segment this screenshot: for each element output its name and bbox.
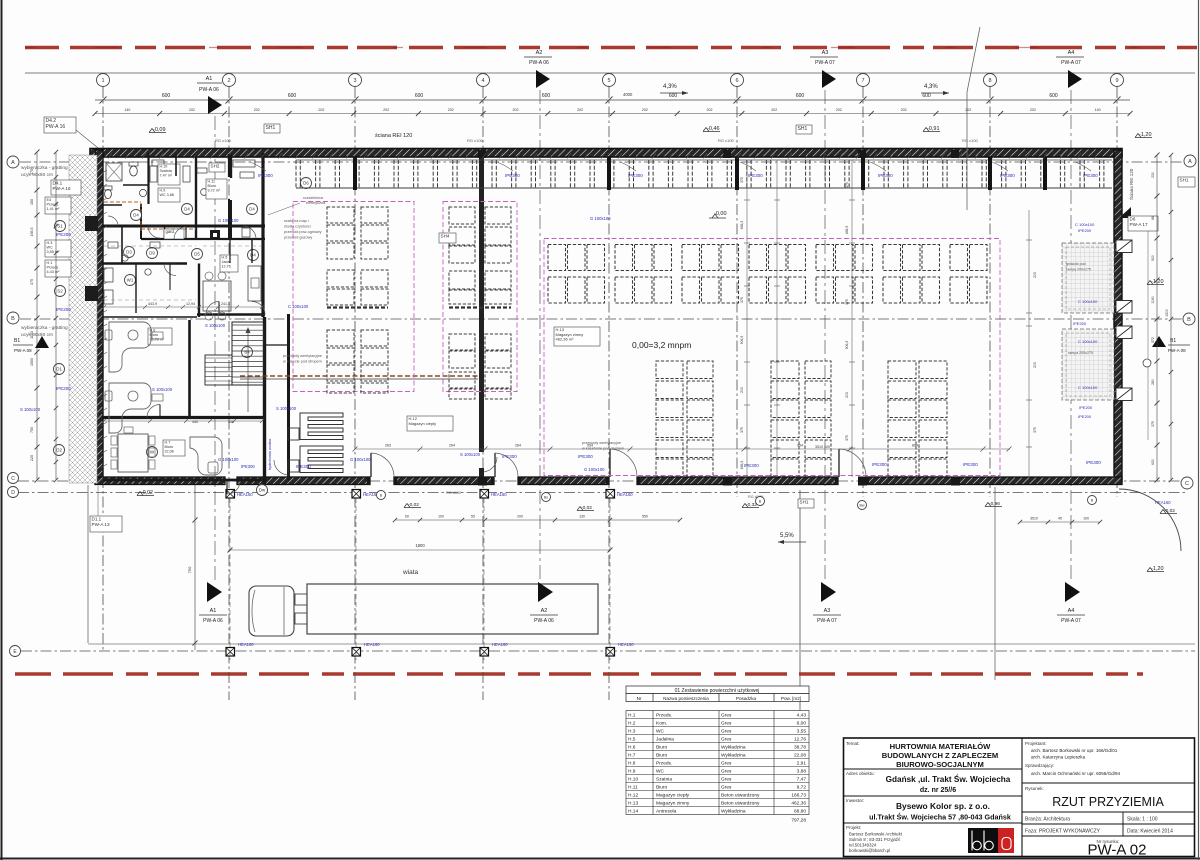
- svg-text:202: 202: [965, 108, 971, 112]
- svg-text:Przeds.: Przeds.: [656, 761, 672, 767]
- svg-text:H.3: H.3: [47, 241, 53, 245]
- svg-text:HEA160: HEA160: [238, 642, 254, 647]
- svg-text:55: 55: [471, 515, 475, 519]
- svg-text:375: 375: [1151, 421, 1155, 427]
- svg-text:Magazyn ciepły: Magazyn ciepły: [409, 421, 437, 426]
- svg-text:Bs: Bs: [544, 495, 548, 499]
- svg-text:IPE300: IPE300: [258, 173, 273, 178]
- svg-text:1500: 1500: [1165, 309, 1169, 317]
- svg-text:IPE300: IPE300: [1083, 173, 1098, 178]
- svg-text:gniazdo pod: gniazdo pod: [1066, 262, 1086, 266]
- svg-text:Gres: Gres: [721, 785, 732, 791]
- svg-text:8: 8: [988, 78, 991, 84]
- svg-text:202: 202: [383, 108, 389, 112]
- svg-text:WC: WC: [656, 729, 665, 735]
- svg-text:środki czystości: środki czystości: [284, 225, 311, 229]
- svg-text:HEA160: HEA160: [617, 492, 633, 497]
- svg-text:BUDOWLANYCH Z ZAPLECZEM: BUDOWLANYCH Z ZAPLECZEM: [882, 751, 998, 760]
- svg-text:230: 230: [1151, 172, 1155, 178]
- svg-text:PW-A 07: PW-A 07: [1061, 618, 1081, 624]
- svg-text:462,36: 462,36: [791, 801, 806, 807]
- svg-text:C 100x100: C 100x100: [1078, 339, 1098, 344]
- svg-text:4000: 4000: [623, 92, 633, 97]
- svg-text:BIUROWO-SOCJALNYM: BIUROWO-SOCJALNYM: [896, 760, 984, 769]
- svg-text:PW-A 08: PW-A 08: [14, 348, 32, 353]
- svg-text:PW-A 02: PW-A 02: [1088, 842, 1147, 859]
- svg-text:202: 202: [642, 108, 648, 112]
- svg-text:D4: D4: [249, 207, 255, 212]
- svg-text:Sulmin 8 ; 83-331 Przyjaźń: Sulmin 8 ; 83-331 Przyjaźń: [849, 837, 901, 842]
- svg-text:IPE200: IPE200: [1078, 228, 1092, 233]
- svg-text:IPE300: IPE300: [878, 173, 893, 178]
- svg-text:IPE300: IPE300: [296, 464, 311, 469]
- svg-text:202: 202: [318, 108, 324, 112]
- svg-text:1: 1: [101, 78, 104, 84]
- svg-text:Wykładzina: Wykładzina: [721, 745, 746, 751]
- svg-text:H.6: H.6: [628, 745, 636, 751]
- svg-text:241,3: 241,3: [221, 302, 230, 306]
- svg-text:375: 375: [740, 297, 744, 303]
- svg-text:-0,02: -0,02: [581, 505, 592, 511]
- svg-text:140: 140: [124, 108, 130, 112]
- svg-text:IPE300: IPE300: [1000, 173, 1015, 178]
- svg-text:arch. Bartosz Borkowski nr upr: arch. Bartosz Borkowski nr upr. 166/Gd/0…: [1031, 748, 1118, 753]
- svg-text:H.10: H.10: [160, 165, 168, 169]
- svg-text:PW-A 07: PW-A 07: [817, 618, 837, 624]
- svg-text:PW-A 13: PW-A 13: [92, 522, 110, 527]
- svg-text:H.8: H.8: [628, 761, 636, 767]
- svg-text:9: 9: [1115, 78, 1118, 84]
- svg-text:-0,96: -0,96: [989, 501, 1000, 507]
- svg-text:4: 4: [481, 78, 484, 84]
- svg-text:-0,46: -0,46: [707, 126, 720, 132]
- svg-text:3,55: 3,55: [797, 729, 807, 735]
- svg-text:IPE300: IPE300: [744, 463, 759, 468]
- svg-text:SH2: SH2: [211, 164, 220, 169]
- svg-text:H.1: H.1: [628, 713, 636, 719]
- svg-text:436,5: 436,5: [845, 226, 849, 235]
- svg-text:202: 202: [1030, 108, 1036, 112]
- svg-text:906,5: 906,5: [845, 341, 849, 350]
- svg-text:RG c100: RG c100: [215, 138, 232, 143]
- svg-text:375: 375: [1033, 427, 1037, 433]
- svg-text:22,08: 22,08: [165, 450, 174, 454]
- svg-text:12,76: 12,76: [222, 265, 231, 269]
- svg-text:954: 954: [797, 444, 803, 448]
- svg-text:864: 864: [912, 444, 918, 448]
- svg-text:954: 954: [587, 444, 593, 448]
- svg-text:264: 264: [515, 444, 521, 448]
- svg-text:Faza: PROJEKT WYKONAWCZY: Faza: PROJEKT WYKONAWCZY: [1025, 829, 1101, 835]
- svg-text:12,94: 12,94: [186, 302, 195, 306]
- svg-text:PW-A 07: PW-A 07: [815, 60, 835, 66]
- svg-text:H.12: H.12: [628, 793, 638, 799]
- svg-text:Bysewo Kolor sp. z o.o.: Bysewo Kolor sp. z o.o.: [896, 801, 990, 811]
- svg-text:-0,00: -0,00: [714, 211, 727, 217]
- svg-text:IPE200: IPE200: [56, 232, 71, 237]
- svg-text:IPE300: IPE300: [1086, 460, 1101, 465]
- svg-text:38,78: 38,78: [794, 745, 806, 751]
- svg-text:HEA160: HEA160: [618, 642, 634, 647]
- svg-text:Gres: Gres: [721, 769, 732, 775]
- svg-text:Antresola: Antresola: [656, 809, 677, 815]
- svg-text:D4.1: D4.1: [53, 181, 63, 186]
- svg-text:572: 572: [1151, 337, 1155, 343]
- svg-text:B: B: [11, 316, 15, 322]
- svg-text:01 Zestawienie powierzchni uży: 01 Zestawienie powierzchni użytkowej: [675, 688, 760, 694]
- svg-text:60: 60: [405, 515, 409, 519]
- svg-text:Magazyn zimny: Magazyn zimny: [656, 801, 690, 807]
- svg-text:PW-A 16: PW-A 16: [53, 186, 71, 191]
- svg-text:IPE200: IPE200: [1078, 414, 1092, 419]
- svg-text:D4: D4: [250, 253, 256, 258]
- svg-text:A3: A3: [822, 50, 829, 56]
- svg-text:198,5: 198,5: [30, 228, 34, 237]
- svg-text:Gres: Gres: [721, 777, 732, 783]
- svg-text:przewód gazowy: przewód gazowy: [284, 236, 312, 240]
- svg-text:45: 45: [1058, 517, 1062, 521]
- svg-text:A4: A4: [1068, 50, 1075, 56]
- svg-text:Jadalnia: Jadalnia: [656, 737, 674, 743]
- svg-text:9,72: 9,72: [797, 785, 807, 791]
- svg-text:Data: Kwiecień 2014: Data: Kwiecień 2014: [1127, 829, 1173, 835]
- svg-text:PW-A 16: PW-A 16: [46, 124, 66, 130]
- svg-text:C 100x100: C 100x100: [288, 304, 309, 309]
- svg-text:1163: 1163: [30, 331, 34, 339]
- svg-text:H.9: H.9: [160, 189, 166, 193]
- svg-text:Biuro: Biuro: [208, 184, 217, 188]
- svg-text:D1.1: D1.1: [92, 517, 102, 522]
- svg-text:Biuro: Biuro: [656, 785, 668, 791]
- svg-text:H.9: H.9: [628, 769, 636, 775]
- svg-text:Szatnia: Szatnia: [656, 777, 672, 783]
- svg-text:HEA160: HEA160: [237, 492, 253, 497]
- svg-text:IPE300: IPE300: [963, 462, 978, 467]
- svg-text:S 100x100: S 100x100: [20, 407, 41, 412]
- svg-text:rampę 200x275: rampę 200x275: [1066, 268, 1091, 272]
- svg-text:w kasecie pod stropem: w kasecie pod stropem: [283, 360, 322, 364]
- svg-text:H.13: H.13: [628, 801, 638, 807]
- svg-text:S 100x100: S 100x100: [276, 406, 297, 411]
- svg-text:IPE200: IPE200: [56, 386, 71, 391]
- svg-text:S 100x100: S 100x100: [152, 387, 173, 392]
- svg-text:140: 140: [1095, 108, 1101, 112]
- svg-text:-0,02: -0,02: [408, 502, 419, 508]
- svg-text:H.11: H.11: [628, 785, 638, 791]
- svg-text:263: 263: [385, 444, 391, 448]
- svg-text:gard.: gard.: [166, 229, 176, 234]
- svg-text:G 100x100: G 100x100: [590, 216, 611, 221]
- svg-text:Biuro: Biuro: [656, 753, 668, 759]
- svg-text:600: 600: [288, 93, 297, 99]
- svg-text:4,43 m²: 4,43 m²: [47, 270, 61, 274]
- svg-text:202: 202: [448, 108, 454, 112]
- svg-text:-1,20: -1,20: [1151, 566, 1164, 572]
- svg-text:A: A: [11, 160, 15, 166]
- svg-text:Biuro: Biuro: [656, 745, 668, 751]
- svg-text:636,5: 636,5: [740, 221, 744, 230]
- svg-text:Temat:: Temat:: [846, 741, 860, 746]
- svg-text:RG c100: RG c100: [467, 138, 484, 143]
- svg-text:C 100x100: C 100x100: [1078, 385, 1098, 390]
- svg-text:SH4: SH4: [441, 234, 450, 239]
- svg-text:3,55 m²: 3,55 m²: [47, 250, 61, 254]
- svg-text:PW-A 06: PW-A 06: [529, 60, 549, 66]
- svg-text:600: 600: [415, 93, 424, 99]
- svg-text:Inwestor:: Inwestor:: [846, 798, 864, 803]
- svg-text:375: 375: [30, 279, 34, 285]
- svg-text:375: 375: [845, 182, 849, 188]
- svg-text:906,5: 906,5: [740, 336, 744, 345]
- svg-text:E4: E4: [47, 198, 52, 202]
- svg-text:375: 375: [845, 435, 849, 441]
- svg-text:4,43: 4,43: [797, 713, 807, 719]
- svg-text:A2: A2: [541, 608, 548, 614]
- svg-text:Biuro: Biuro: [165, 445, 174, 449]
- svg-text:Beton utwardzony: Beton utwardzony: [721, 793, 760, 799]
- svg-text:A1: A1: [210, 608, 217, 614]
- svg-text:ul.Trakt Św. Wojciecha 57 ,80-: ul.Trakt Św. Wojciecha 57 ,80-043 Gdańsk: [869, 813, 1011, 822]
- svg-text:630: 630: [1151, 459, 1155, 465]
- svg-text:WC 3,88: WC 3,88: [160, 193, 174, 197]
- svg-text:Wykładzina: Wykładzina: [721, 809, 746, 815]
- svg-text:wybieraczka - gratting: wybieraczka - gratting: [21, 165, 68, 171]
- svg-text:H.7: H.7: [165, 441, 171, 445]
- svg-text:HEA160: HEA160: [491, 492, 507, 497]
- svg-text:Pow. [m2]: Pow. [m2]: [781, 696, 801, 701]
- svg-text:202: 202: [707, 108, 713, 112]
- svg-text:D9: D9: [149, 251, 155, 256]
- svg-text:Bartosz Borkowski Architekt: Bartosz Borkowski Architekt: [849, 832, 903, 837]
- svg-text:100: 100: [438, 515, 444, 519]
- svg-text:1800: 1800: [415, 543, 425, 548]
- svg-text:rampa 200x275: rampa 200x275: [1068, 351, 1093, 355]
- svg-text:1500: 1500: [30, 358, 34, 366]
- svg-text:202: 202: [189, 108, 195, 112]
- svg-text:IPE200: IPE200: [56, 307, 71, 312]
- svg-text:202: 202: [512, 108, 518, 112]
- svg-text:G 100x100: G 100x100: [584, 467, 605, 472]
- svg-text:S 100x100: S 100x100: [460, 452, 481, 457]
- svg-text:B4: B4: [244, 350, 250, 355]
- svg-text:Dw: Dw: [259, 488, 266, 493]
- svg-text:SH1: SH1: [800, 500, 809, 505]
- svg-text:3: 3: [353, 78, 356, 84]
- svg-text:1190: 1190: [1151, 296, 1155, 303]
- svg-text:szafa na map i: szafa na map i: [284, 219, 309, 223]
- svg-text:Bw: Bw: [860, 503, 865, 507]
- svg-text:WC: WC: [47, 245, 54, 249]
- svg-text:D3: D3: [126, 250, 132, 255]
- svg-text:H.5: H.5: [222, 256, 228, 260]
- svg-text:Przeds.: Przeds.: [656, 713, 672, 719]
- svg-text:Gres: Gres: [721, 729, 732, 735]
- svg-text:C 100x100: C 100x100: [1078, 299, 1098, 304]
- svg-text:166,73: 166,73: [791, 793, 806, 799]
- svg-text:Branża: Architektura: Branża: Architektura: [1025, 817, 1070, 823]
- svg-text:H.14: H.14: [628, 809, 638, 815]
- svg-text:D4: D4: [133, 213, 139, 218]
- svg-text:A3: A3: [824, 608, 831, 614]
- svg-text:RG c100: RG c100: [718, 138, 735, 143]
- svg-text:12,76: 12,76: [794, 737, 806, 743]
- svg-text:Ściana REI 120: Ściana REI 120: [1127, 168, 1134, 200]
- svg-text:100: 100: [1083, 517, 1089, 521]
- svg-text:S2: S2: [57, 289, 63, 294]
- svg-text:6: 6: [735, 78, 738, 84]
- svg-text:Wykładzina: Wykładzina: [721, 753, 746, 759]
- svg-text:Gres: Gres: [721, 761, 732, 767]
- svg-text:Projektant:: Projektant:: [1025, 741, 1047, 746]
- svg-text:IPE300: IPE300: [628, 173, 643, 178]
- svg-text:Rysunek:: Rysunek:: [1025, 786, 1044, 791]
- svg-text:Gres: Gres: [721, 721, 732, 727]
- svg-text:443,9: 443,9: [148, 302, 157, 306]
- svg-text:W1: W1: [127, 278, 134, 283]
- svg-text:797,28: 797,28: [791, 818, 806, 824]
- svg-text:IPE300: IPE300: [505, 173, 520, 178]
- svg-text:-0,91: -0,91: [927, 126, 940, 132]
- svg-text:hydrofornia wodna: hydrofornia wodna: [268, 438, 272, 470]
- svg-text:O2: O2: [56, 448, 63, 453]
- svg-text:D6: D6: [1130, 217, 1136, 222]
- svg-text:B1: B1: [14, 338, 20, 344]
- svg-text:-1,20: -1,20: [1139, 132, 1152, 138]
- svg-text:IPE300: IPE300: [578, 454, 593, 459]
- svg-text:600: 600: [162, 93, 171, 99]
- svg-text:203: 203: [1033, 272, 1037, 278]
- svg-text:150: 150: [30, 199, 34, 205]
- svg-text:C 100x100: C 100x100: [1075, 222, 1095, 227]
- svg-text:202: 202: [254, 108, 260, 112]
- svg-text:3510: 3510: [1030, 517, 1038, 521]
- svg-text:PW-A 17: PW-A 17: [1130, 222, 1148, 227]
- svg-text:A1: A1: [206, 76, 213, 82]
- svg-text:A4: A4: [1068, 608, 1075, 614]
- svg-text:750: 750: [187, 566, 192, 573]
- svg-text:Kom.: Kom.: [656, 721, 667, 727]
- svg-text:Magazyn ciepły: Magazyn ciepły: [656, 793, 690, 799]
- svg-text:750: 750: [30, 427, 34, 433]
- svg-text:PW-A 07: PW-A 07: [1061, 60, 1081, 66]
- svg-text:borkowski@bbarch.pl: borkowski@bbarch.pl: [849, 848, 890, 853]
- svg-text:przewód pow-ogniowy: przewód pow-ogniowy: [284, 230, 322, 234]
- svg-text:PW-A 06: PW-A 06: [199, 87, 219, 93]
- svg-text:IPE300: IPE300: [502, 454, 517, 459]
- svg-text:HEA160: HEA160: [364, 642, 380, 647]
- svg-text:3510 100: 3510 100: [815, 445, 830, 449]
- svg-text:375: 375: [740, 427, 744, 433]
- svg-text:C: C: [1185, 481, 1189, 487]
- svg-text:600: 600: [542, 93, 551, 99]
- svg-text:88: 88: [1151, 216, 1155, 220]
- svg-text:Gres: Gres: [721, 713, 732, 719]
- svg-text:D5: D5: [194, 252, 200, 257]
- svg-text:D4: D4: [184, 207, 190, 212]
- svg-text:375: 375: [740, 177, 744, 183]
- svg-text:C: C: [11, 476, 15, 482]
- svg-text:HURTOWNIA MATERIAŁÓW: HURTOWNIA MATERIAŁÓW: [890, 742, 992, 751]
- svg-text:4,3%: 4,3%: [663, 84, 677, 90]
- svg-text:203: 203: [1033, 362, 1037, 368]
- svg-text:600: 600: [1049, 93, 1058, 99]
- svg-text:H.11: H.11: [208, 180, 216, 184]
- svg-text:H.7: H.7: [628, 753, 636, 759]
- svg-text:4,3%: 4,3%: [924, 84, 938, 90]
- svg-text:375: 375: [845, 299, 849, 305]
- svg-text:Nazwa pomieszczenia: Nazwa pomieszczenia: [663, 696, 709, 701]
- svg-text:7: 7: [861, 78, 864, 84]
- svg-text:202: 202: [771, 108, 777, 112]
- svg-text:O1: O1: [56, 367, 63, 372]
- svg-text:1,41 m²: 1,41 m²: [47, 207, 61, 211]
- svg-text:A: A: [1188, 159, 1192, 165]
- svg-text:A2: A2: [536, 50, 543, 56]
- svg-text:SH1: SH1: [798, 126, 808, 132]
- svg-text:H.10: H.10: [628, 777, 638, 783]
- svg-text:600: 600: [922, 93, 931, 99]
- svg-text:2,91: 2,91: [797, 761, 807, 767]
- svg-text:7,47: 7,47: [797, 777, 807, 783]
- svg-text:IPE200: IPE200: [1073, 321, 1087, 326]
- svg-text:G 100x100: G 100x100: [218, 457, 239, 462]
- svg-text:WC: WC: [656, 769, 665, 775]
- svg-text:SH1: SH1: [1180, 178, 1189, 183]
- svg-text:450: 450: [192, 420, 198, 424]
- svg-text:RG c100: RG c100: [962, 138, 979, 143]
- svg-text:G 100x100: G 100x100: [350, 457, 371, 462]
- svg-text:203: 203: [845, 392, 849, 398]
- svg-text:RG d100: RG d100: [446, 491, 461, 495]
- svg-text:Adres obiektu:: Adres obiektu:: [846, 771, 875, 776]
- svg-text:H.1: H.1: [47, 261, 53, 265]
- svg-text:Szatnia: Szatnia: [160, 169, 173, 173]
- svg-text:IPE300: IPE300: [241, 464, 255, 469]
- svg-text:HEA160: HEA160: [492, 642, 508, 647]
- svg-text:Gres: Gres: [721, 737, 732, 743]
- svg-text:przewody wentylacyjne: przewody wentylacyjne: [283, 354, 322, 358]
- svg-text:H.3: H.3: [628, 729, 636, 735]
- svg-text:7,47 m²: 7,47 m²: [160, 174, 173, 178]
- svg-text:D6: D6: [303, 181, 309, 186]
- svg-text:ściana REI 120: ściana REI 120: [375, 133, 412, 139]
- svg-text:H.2: H.2: [628, 721, 636, 727]
- svg-text:0,00=3,2 mnpm: 0,00=3,2 mnpm: [632, 340, 691, 350]
- svg-text:550: 550: [642, 515, 648, 519]
- svg-text:PW-A 06: PW-A 06: [203, 618, 223, 624]
- svg-text:5: 5: [607, 78, 610, 84]
- svg-text:22,08: 22,08: [794, 753, 806, 759]
- svg-text:D: D: [11, 490, 15, 496]
- svg-text:203: 203: [740, 387, 744, 393]
- svg-text:PW-A 06: PW-A 06: [534, 618, 554, 624]
- svg-text:wybieraczka - gratting: wybieraczka - gratting: [21, 325, 68, 331]
- svg-text:130: 130: [579, 515, 585, 519]
- svg-text:5,5%: 5,5%: [780, 533, 794, 539]
- svg-text:IPE300: IPE300: [748, 173, 763, 178]
- svg-text:68,80: 68,80: [794, 809, 806, 815]
- svg-text:2: 2: [227, 78, 230, 84]
- svg-text:600: 600: [669, 93, 678, 99]
- svg-text:-0,02: -0,02: [1164, 508, 1175, 514]
- svg-text:Przeds.: Przeds.: [47, 265, 60, 269]
- svg-text:Skala: 1 : 100: Skala: 1 : 100: [1127, 817, 1158, 823]
- svg-text:HEA160: HEA160: [1155, 500, 1171, 505]
- svg-text:Gdańsk ,ul. Trakt Św. Wojciech: Gdańsk ,ul. Trakt Św. Wojciecha: [886, 773, 1011, 784]
- svg-text:S 100x100: S 100x100: [205, 323, 226, 328]
- svg-text:280: 280: [1151, 379, 1155, 385]
- svg-text:202: 202: [901, 108, 907, 112]
